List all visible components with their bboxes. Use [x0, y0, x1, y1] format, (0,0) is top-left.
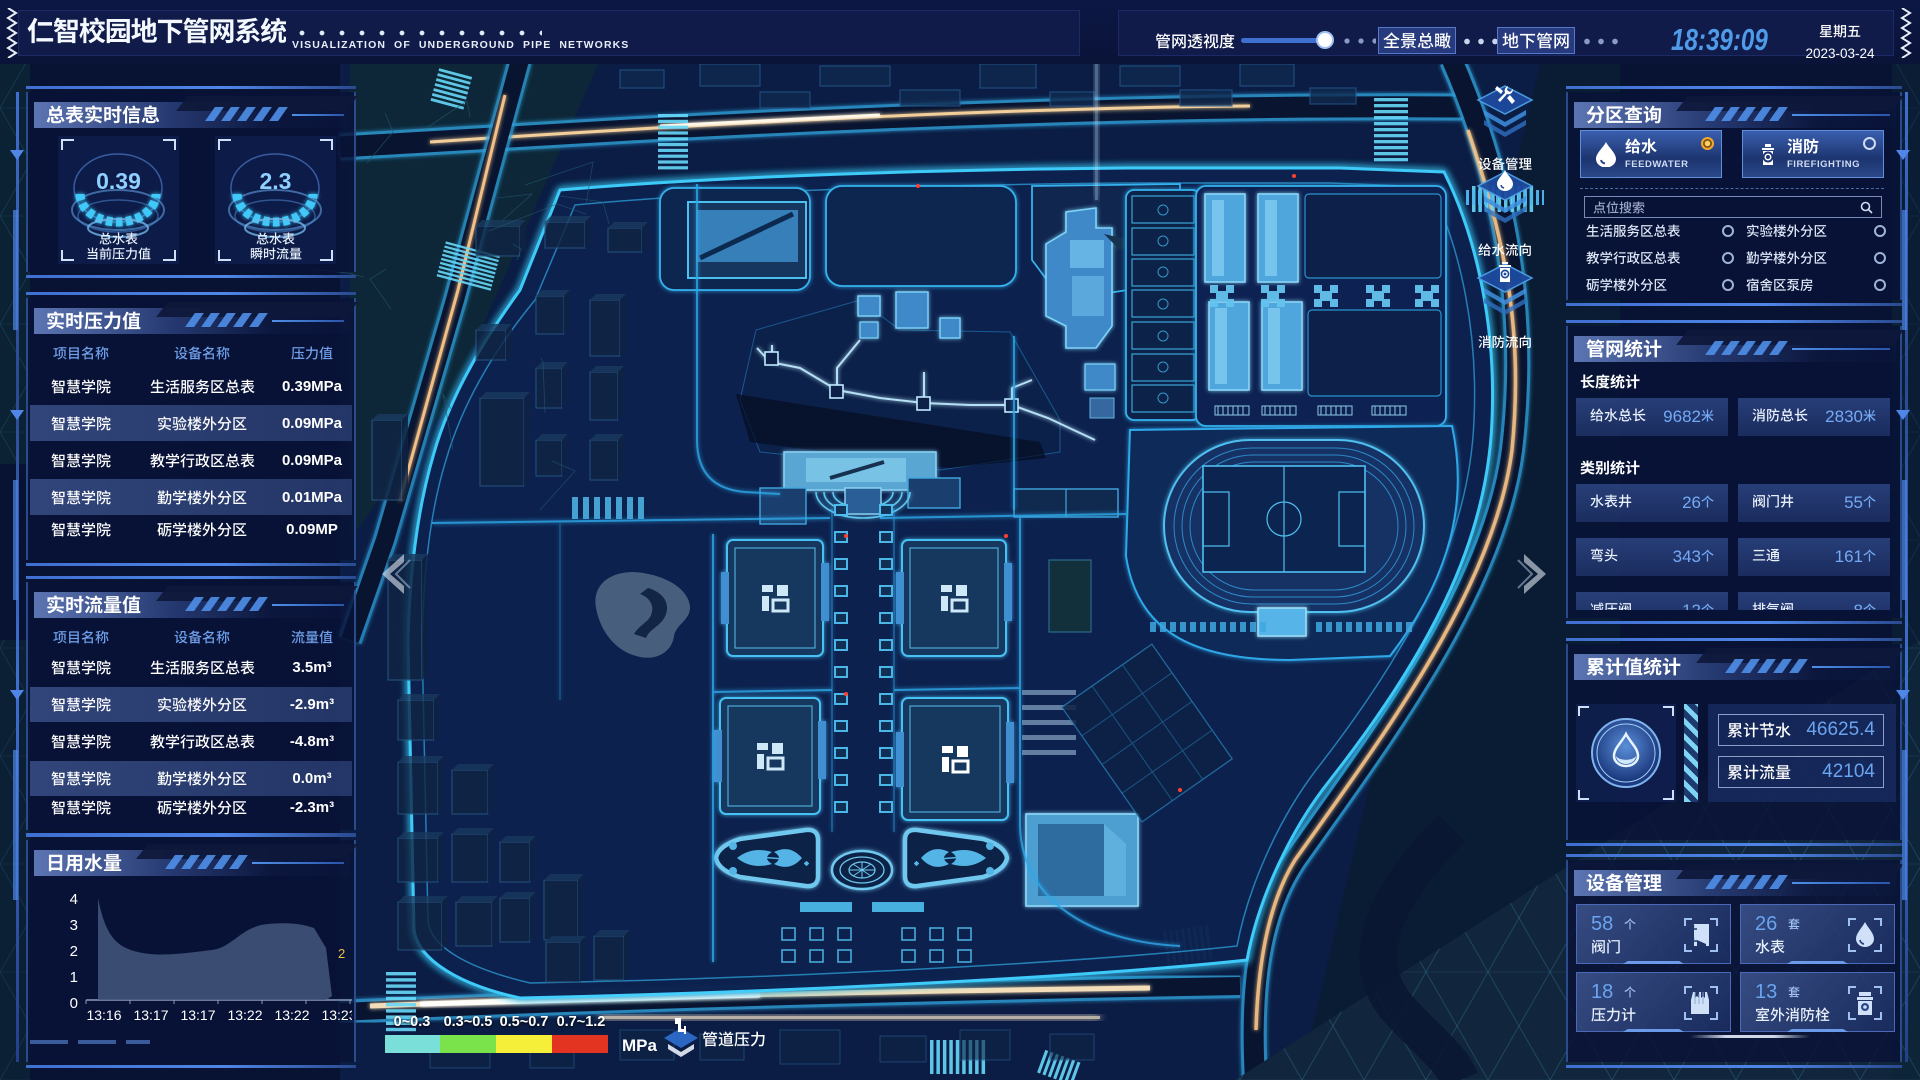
svg-text:1: 1 — [70, 969, 78, 986]
svg-text:3: 3 — [70, 917, 78, 934]
svg-text:13:23: 13:23 — [321, 1007, 352, 1023]
svg-text:13:16: 13:16 — [86, 1007, 121, 1023]
svg-text:13:22: 13:22 — [227, 1007, 262, 1023]
svg-text:13:17: 13:17 — [180, 1007, 215, 1023]
svg-text:2: 2 — [70, 943, 78, 960]
svg-text:13:22: 13:22 — [274, 1007, 309, 1023]
svg-text:4: 4 — [70, 891, 78, 908]
svg-text:0: 0 — [70, 995, 78, 1012]
svg-text:2: 2 — [338, 946, 345, 961]
svg-text:13:17: 13:17 — [133, 1007, 168, 1023]
